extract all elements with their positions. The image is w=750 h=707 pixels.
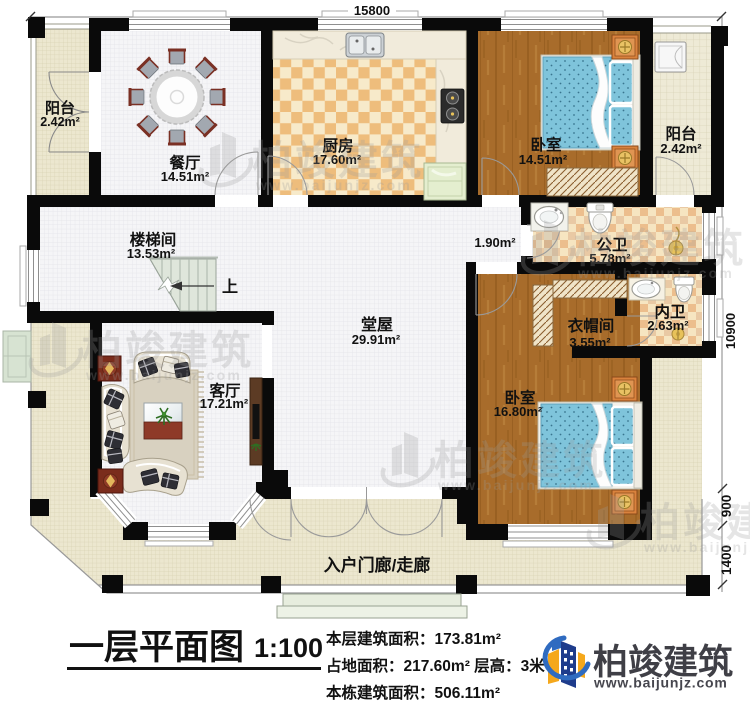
svg-text:www.baijunjz.com: www.baijunjz.com [643,539,750,555]
svg-text:上: 上 [222,278,238,296]
svg-text:10900: 10900 [723,313,738,349]
svg-text:1.90m²: 1.90m² [474,235,516,250]
svg-text:www.baijunjz.com: www.baijunjz.com [85,367,242,383]
svg-text:www.baijunjz.com: www.baijunjz.com [577,265,734,281]
svg-text:2.42m²: 2.42m² [660,141,702,156]
svg-text:17.21m²: 17.21m² [200,396,249,411]
svg-text:13.53m²: 13.53m² [127,246,176,261]
svg-text:本栋建筑面积：506.11m²: 本栋建筑面积：506.11m² [326,683,500,702]
svg-text:15800: 15800 [354,3,390,18]
svg-text:入户门廊/走廊: 入户门廊/走廊 [324,555,431,575]
svg-text:一层平面图: 一层平面图 [69,628,244,667]
svg-text:16.80m²: 16.80m² [494,404,543,419]
svg-text:29.91m²: 29.91m² [352,332,401,347]
svg-text:占地面积：217.60m² 层高：3米: 占地面积：217.60m² 层高：3米 [326,656,545,675]
svg-text:2.42m²: 2.42m² [40,115,80,129]
svg-text:www.baijunjz.com: www.baijunjz.com [437,477,594,493]
svg-text:1:100: 1:100 [254,633,323,663]
svg-text:www.baijunjz.com: www.baijunjz.com [593,675,728,691]
svg-text:www.baijunjz.com: www.baijunjz.com [255,177,412,193]
svg-text:2.63m²: 2.63m² [647,318,689,333]
svg-text:本层建筑面积：173.81m²: 本层建筑面积：173.81m² [326,629,501,648]
svg-text:14.51m²: 14.51m² [519,152,568,167]
svg-text:衣帽间: 衣帽间 [568,316,615,335]
svg-text:3.55m²: 3.55m² [569,335,611,350]
